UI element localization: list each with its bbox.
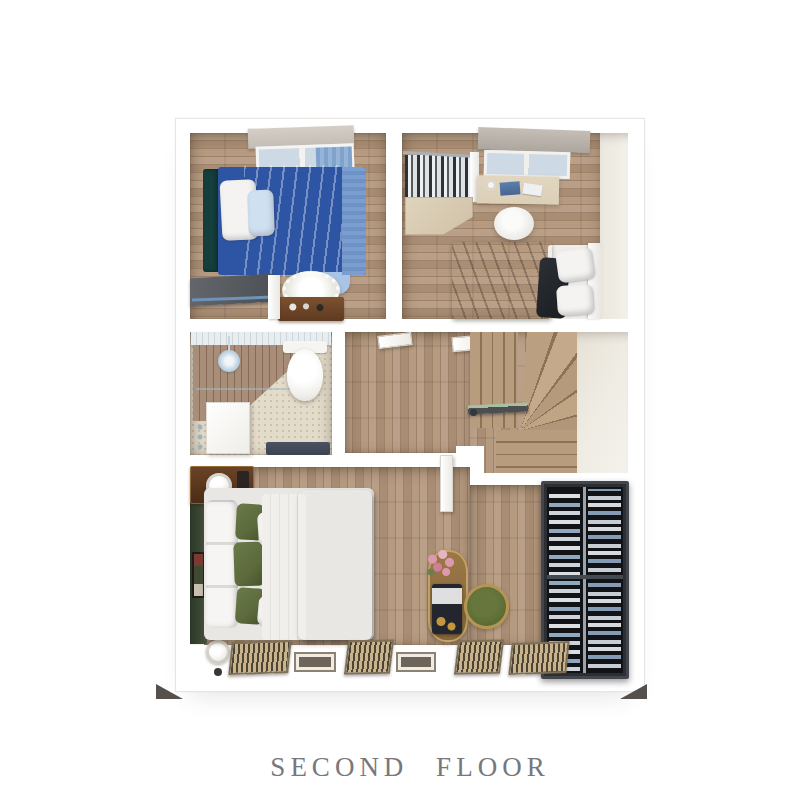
staircase-newel-post bbox=[470, 409, 477, 416]
room-hallway-floor bbox=[345, 332, 470, 453]
floor-vent-2 bbox=[344, 640, 394, 675]
window-blind-2 bbox=[478, 127, 591, 153]
nightstand-1-items bbox=[288, 301, 328, 313]
floor-vent-1 bbox=[228, 640, 291, 675]
bathroom-door bbox=[206, 402, 250, 454]
floor-caption: SECOND FLOOR bbox=[175, 752, 645, 783]
clothes-rack bbox=[405, 155, 473, 199]
pillow-blue-1 bbox=[247, 190, 275, 237]
perfume-tray bbox=[432, 584, 462, 634]
bathroom-vanity bbox=[266, 442, 330, 455]
room-bedroom-green-lit-strip bbox=[600, 133, 628, 319]
blanket-dark bbox=[298, 490, 372, 640]
pillow-white-2b bbox=[556, 284, 594, 316]
vent-slot-1 bbox=[294, 652, 336, 672]
wardrobe-clothes-right bbox=[588, 489, 621, 671]
staircase-lower-treads bbox=[496, 430, 577, 473]
pillow-white-2a bbox=[555, 247, 595, 284]
floor-vent-3 bbox=[454, 640, 504, 675]
bed-single-stripe-edge bbox=[342, 167, 366, 275]
shower-head bbox=[218, 350, 240, 372]
flower-bouquet bbox=[424, 548, 458, 580]
door-handle-dots bbox=[196, 424, 204, 450]
round-stool bbox=[464, 584, 509, 629]
door-leaf-master bbox=[440, 455, 453, 512]
pillow-green-b bbox=[233, 541, 265, 586]
shower-arm bbox=[228, 336, 230, 351]
vent-slot-2 bbox=[396, 652, 436, 672]
floor-dot bbox=[214, 668, 222, 676]
desk-books bbox=[500, 181, 521, 195]
desk-cup bbox=[486, 180, 496, 190]
toilet-bowl bbox=[287, 349, 323, 401]
page: { "caption": { "title": "SECOND FLOOR" }… bbox=[0, 0, 800, 800]
divider-panel bbox=[268, 275, 280, 319]
wardrobe-rail bbox=[583, 487, 586, 673]
table-lamp-bottom bbox=[206, 640, 230, 664]
shower-glass-partition bbox=[196, 388, 290, 390]
alarm-clock bbox=[237, 471, 249, 489]
desk-chair bbox=[494, 207, 534, 240]
wardrobe-shelf bbox=[547, 575, 623, 579]
floor-vent-4 bbox=[508, 641, 569, 675]
stair-landing-lit-floor bbox=[577, 332, 628, 473]
